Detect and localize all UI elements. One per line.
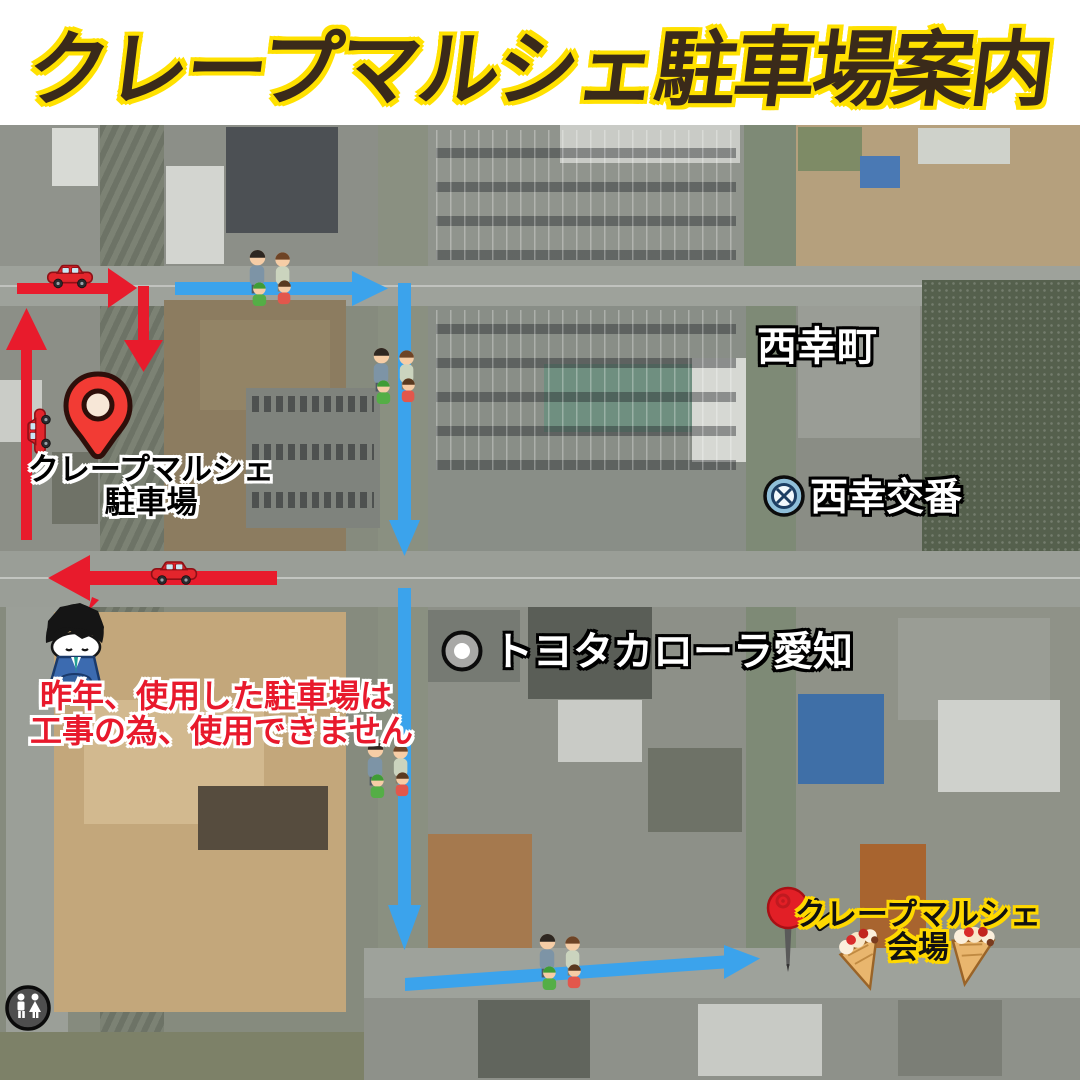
parking-guide-poster: クレープマルシェ駐車場案内	[0, 0, 1080, 1080]
restroom-icon	[4, 984, 52, 1036]
poster-title: クレープマルシェ駐車場案内	[22, 3, 1059, 122]
parking-label-line2: 駐車場	[105, 485, 198, 521]
walking-family-icon	[366, 344, 424, 412]
car-dealer-label: トヨタカローラ愛知	[493, 631, 853, 674]
police-box-label: 西幸交番	[810, 477, 962, 518]
police-station-icon	[762, 474, 806, 522]
walking-family-icon	[242, 246, 300, 314]
parking-label: クレープマルシェ 駐車場	[20, 454, 282, 521]
warning-line1: 昨年、使用した駐車場は	[40, 677, 392, 715]
poi-dot-icon	[440, 629, 484, 677]
poster-header: クレープマルシェ駐車場案内	[0, 0, 1080, 125]
parking-label-line1: クレープマルシェ	[28, 452, 274, 488]
warning-text: 昨年、使用した駐車場は 工事の為、使用できません	[30, 679, 402, 748]
red-car-icon	[150, 558, 198, 590]
red-car-icon	[25, 408, 52, 456]
district-label: 西幸町	[757, 326, 877, 369]
warning-line2: 工事の為、使用できません	[30, 712, 413, 750]
red-car-icon	[46, 262, 94, 293]
walking-family-icon	[532, 930, 590, 998]
